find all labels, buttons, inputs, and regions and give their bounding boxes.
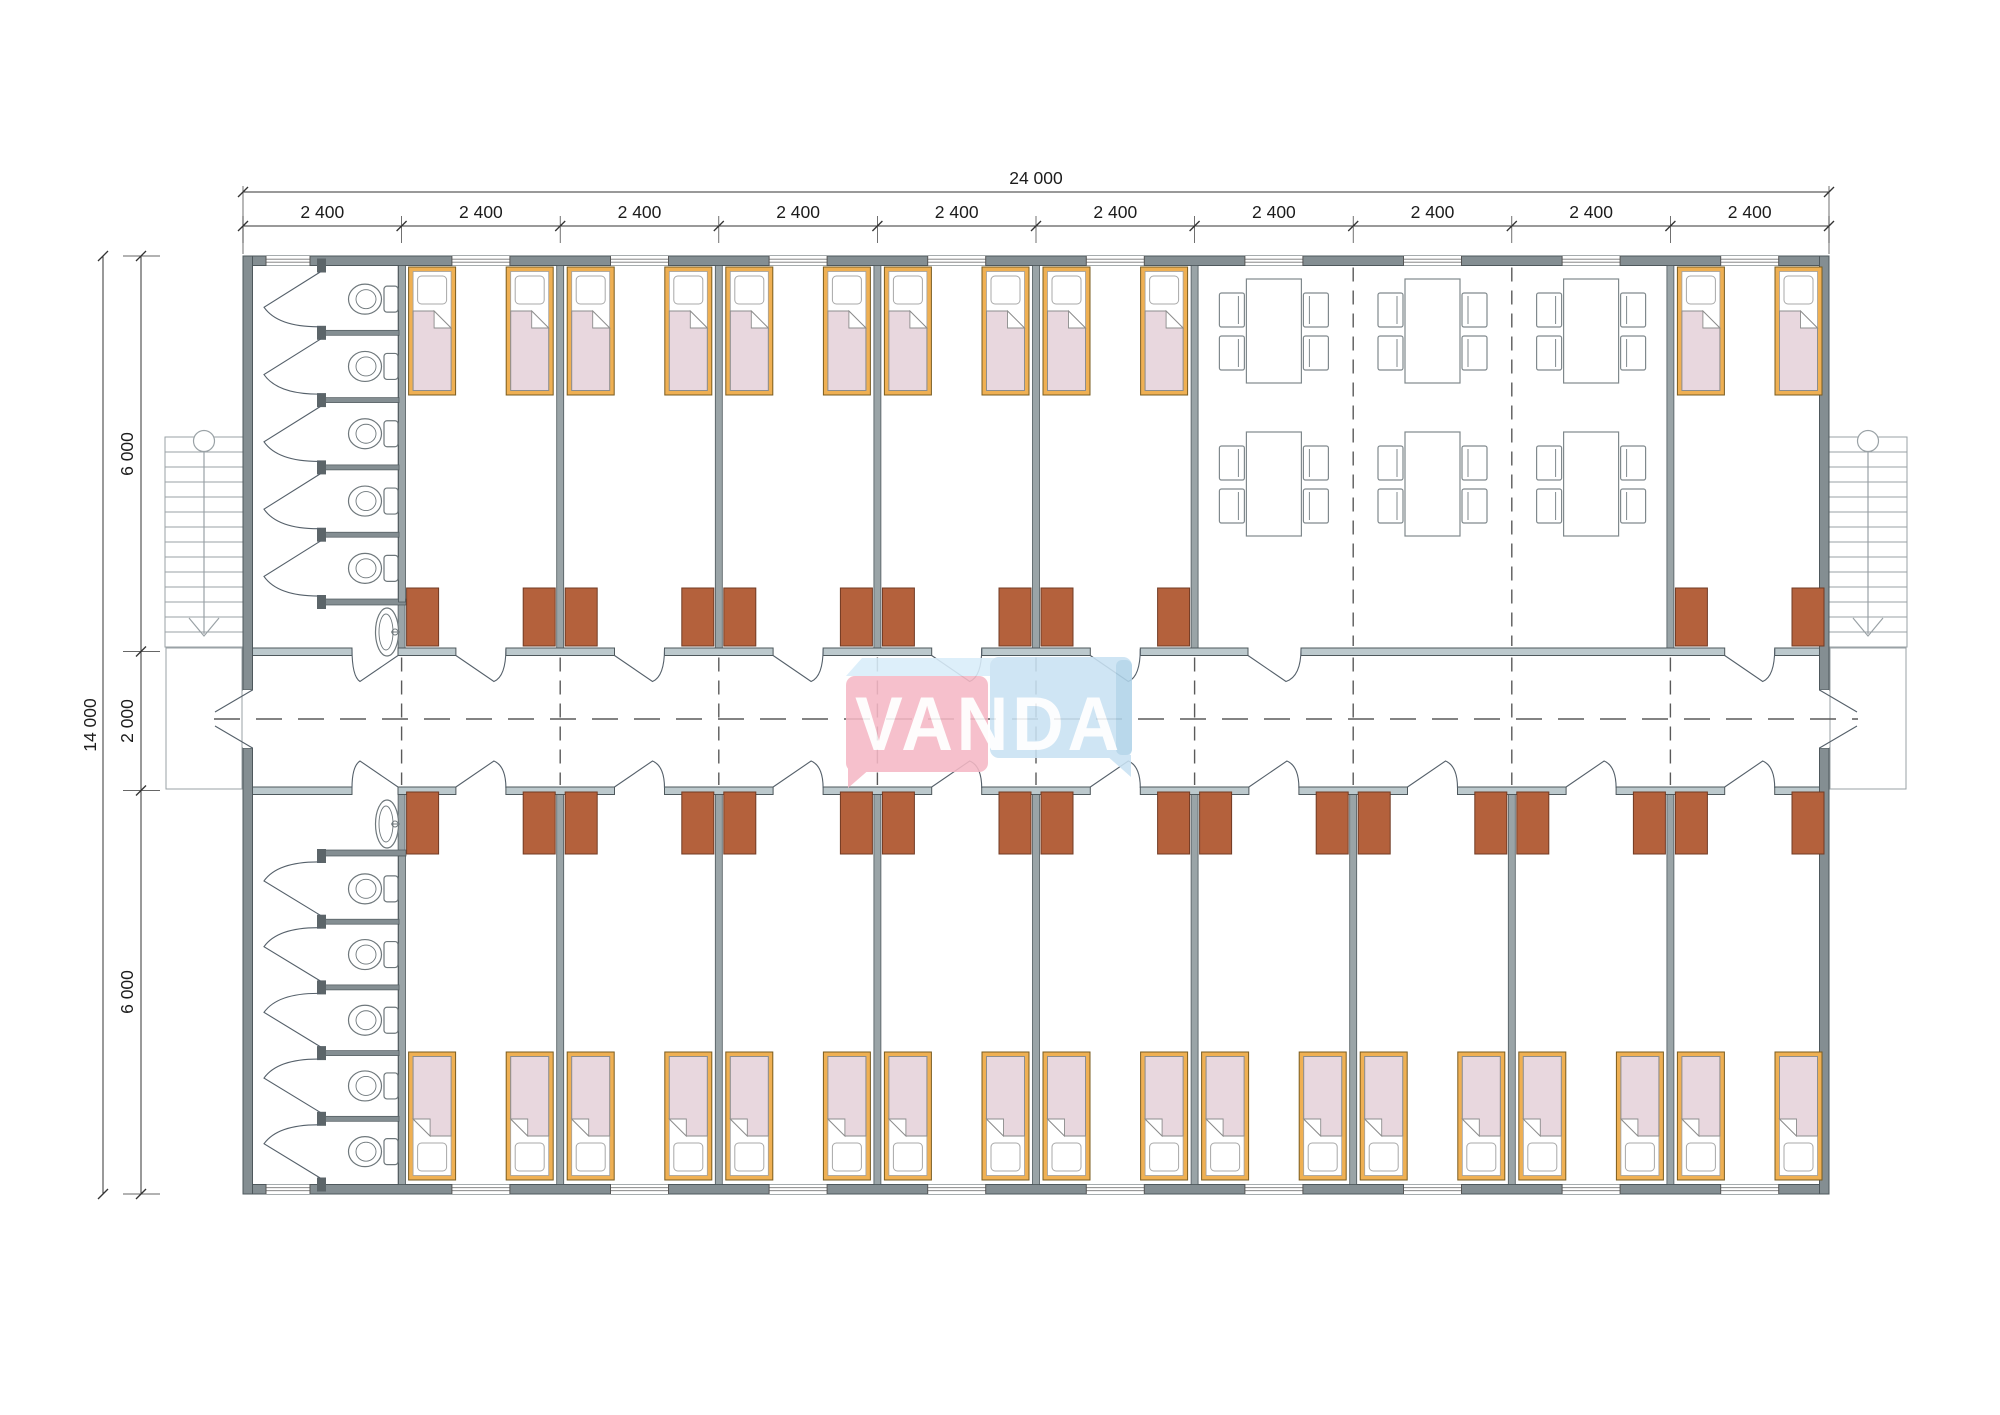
chair	[1621, 489, 1646, 523]
chair	[1462, 293, 1487, 327]
bed	[1775, 1052, 1822, 1180]
toilet-icon	[349, 1071, 382, 1101]
dining-table	[1564, 279, 1619, 383]
bed	[823, 267, 870, 395]
dim-module-width: 2 400	[459, 202, 503, 222]
bed	[665, 1052, 712, 1180]
chair	[1219, 336, 1244, 370]
dim-module-width: 2 400	[776, 202, 820, 222]
floor-plan-canvas: 24 0002 4002 4002 4002 4002 4002 4002 40…	[0, 0, 2000, 1415]
wardrobe	[1041, 588, 1073, 646]
logo-wordmark: VANDA	[855, 682, 1123, 767]
toilet-icon	[349, 874, 382, 904]
bed	[1299, 1052, 1346, 1180]
bed	[409, 1052, 456, 1180]
bed	[567, 267, 614, 395]
wardrobe	[1358, 792, 1390, 854]
wardrobe	[1475, 792, 1507, 854]
dim-module-width: 2 400	[935, 202, 979, 222]
bed	[506, 1052, 553, 1180]
dim-module-width: 2 400	[618, 202, 662, 222]
wardrobe	[1675, 588, 1707, 646]
bed	[726, 1052, 773, 1180]
stair-start-symbol	[1858, 431, 1879, 452]
chair	[1462, 336, 1487, 370]
wardrobe	[1792, 792, 1824, 854]
wardrobe	[840, 792, 872, 854]
chair	[1621, 336, 1646, 370]
bed	[823, 1052, 870, 1180]
toilet-icon	[349, 486, 382, 516]
wardrobe	[1041, 792, 1073, 854]
dining-table	[1246, 279, 1301, 383]
bed	[726, 267, 773, 395]
bed	[567, 1052, 614, 1180]
chair	[1378, 336, 1403, 370]
chair	[1219, 489, 1244, 523]
bed	[1360, 1052, 1407, 1180]
dim-module-width: 2 400	[1728, 202, 1772, 222]
bed	[884, 1052, 931, 1180]
chair	[1537, 446, 1562, 480]
logo-bevel	[846, 658, 998, 676]
bed	[982, 267, 1029, 395]
dim-module-width: 2 400	[1411, 202, 1455, 222]
wardrobe	[1675, 792, 1707, 854]
chair	[1537, 336, 1562, 370]
toilet-icon	[349, 940, 382, 970]
wardrobe	[523, 792, 555, 854]
toilet-icon	[349, 553, 382, 583]
chair	[1537, 293, 1562, 327]
bed	[1616, 1052, 1663, 1180]
wardrobe	[565, 588, 597, 646]
dining-table	[1246, 432, 1301, 536]
chair	[1537, 489, 1562, 523]
wardrobe	[523, 588, 555, 646]
dim-seg-mid: 2 000	[117, 699, 137, 743]
dim-module-width: 2 400	[300, 202, 344, 222]
wardrobe	[1200, 792, 1232, 854]
dining-area	[1219, 279, 1645, 536]
wardrobe	[840, 588, 872, 646]
bed	[1141, 267, 1188, 395]
bed	[409, 267, 456, 395]
bed	[982, 1052, 1029, 1180]
bed	[1677, 1052, 1724, 1180]
dining-table	[1405, 279, 1460, 383]
wardrobe	[999, 792, 1031, 854]
bed	[665, 267, 712, 395]
chair	[1378, 293, 1403, 327]
toilet-icon	[349, 1005, 382, 1035]
bed	[884, 267, 931, 395]
bed	[1519, 1052, 1566, 1180]
chair	[1303, 446, 1328, 480]
wardrobe	[882, 792, 914, 854]
chair	[1303, 489, 1328, 523]
bathroom-bottom	[264, 800, 406, 1192]
wardrobe	[1158, 792, 1190, 854]
stair-landing	[1830, 648, 1906, 789]
bed	[1043, 267, 1090, 395]
bed	[1775, 267, 1822, 395]
dim-total-width: 24 000	[1009, 168, 1063, 188]
wardrobe	[724, 792, 756, 854]
toilet-icon	[349, 1137, 382, 1167]
bed	[1141, 1052, 1188, 1180]
vanda-logo: VANDA	[846, 657, 1132, 788]
chair	[1462, 446, 1487, 480]
wardrobe	[724, 588, 756, 646]
chair	[1303, 336, 1328, 370]
bed	[1458, 1052, 1505, 1180]
chair	[1462, 489, 1487, 523]
wardrobe	[682, 588, 714, 646]
bed	[1043, 1052, 1090, 1180]
toilet-icon	[349, 351, 382, 381]
chair	[1219, 446, 1244, 480]
wardrobe	[682, 792, 714, 854]
wardrobe	[407, 588, 439, 646]
dining-table	[1564, 432, 1619, 536]
dim-total-height: 14 000	[80, 698, 100, 752]
toilet-icon	[349, 284, 382, 314]
dim-module-width: 2 400	[1569, 202, 1613, 222]
stair-start-symbol	[194, 431, 215, 452]
chair	[1219, 293, 1244, 327]
wardrobe	[1633, 792, 1665, 854]
chair	[1378, 489, 1403, 523]
dim-module-width: 2 400	[1093, 202, 1137, 222]
chair	[1303, 293, 1328, 327]
dining-table	[1405, 432, 1460, 536]
wardrobe	[882, 588, 914, 646]
dim-seg-bottom: 6 000	[117, 970, 137, 1014]
wardrobe	[1792, 588, 1824, 646]
wardrobe	[1158, 588, 1190, 646]
wardrobe	[1517, 792, 1549, 854]
wardrobe	[999, 588, 1031, 646]
dim-seg-top: 6 000	[117, 432, 137, 476]
floor-plan: 24 0002 4002 4002 4002 4002 4002 4002 40…	[0, 0, 2000, 1415]
dim-module-width: 2 400	[1252, 202, 1296, 222]
wardrobe	[407, 792, 439, 854]
wardrobe	[565, 792, 597, 854]
bathroom-top	[264, 259, 406, 657]
chair	[1621, 446, 1646, 480]
bed	[1202, 1052, 1249, 1180]
wardrobe	[1316, 792, 1348, 854]
chair	[1621, 293, 1646, 327]
bed	[506, 267, 553, 395]
bed	[1677, 267, 1724, 395]
toilet-icon	[349, 419, 382, 449]
chair	[1378, 446, 1403, 480]
